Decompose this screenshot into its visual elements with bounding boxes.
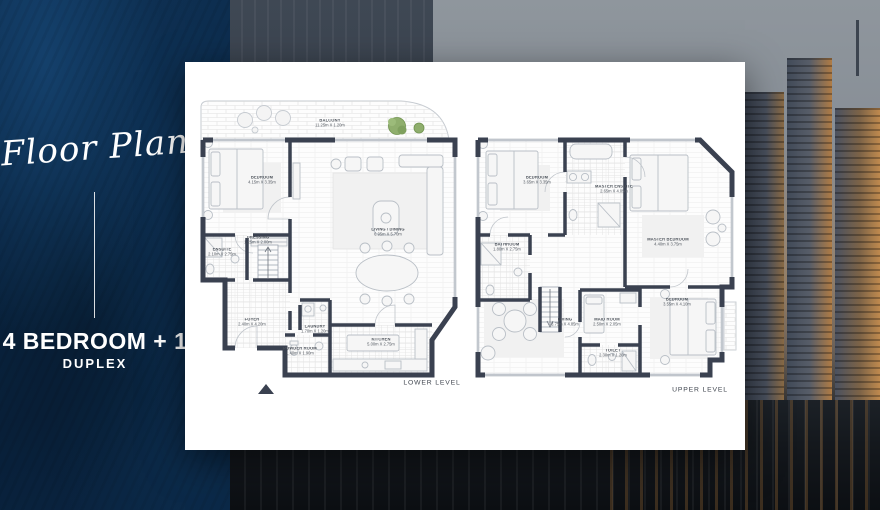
unit-type-headline: 4 BEDROOM + 1	[0, 328, 200, 355]
coffee-table-icon	[373, 201, 399, 235]
tower-2	[787, 58, 832, 404]
stairs-icon	[540, 287, 560, 332]
side-balcony	[724, 302, 736, 350]
floorplan-card: BALCONY11.25m X 1.20m BEDROOM4.15m X 3.3…	[185, 62, 745, 450]
console-icon	[293, 163, 300, 199]
script-title: Floor Plan	[0, 121, 191, 174]
tower-1	[744, 92, 784, 404]
lower-plan-drawing	[195, 97, 465, 397]
level-label-lower: LOWER LEVEL	[385, 379, 479, 387]
entrance-marker-icon	[258, 384, 274, 394]
unit-type-subheadline: DUPLEX	[0, 356, 200, 371]
stairs-icon	[258, 245, 278, 280]
balcony-area	[201, 101, 449, 140]
bed-icon	[479, 140, 539, 221]
lower-level-plan: BALCONY11.25m X 1.20m BEDROOM4.15m X 3.3…	[195, 97, 465, 397]
antenna-spire	[856, 20, 859, 76]
tower-3	[835, 108, 880, 404]
bed-icon	[204, 139, 264, 220]
upper-plan-drawing	[470, 97, 740, 397]
vertical-divider	[94, 192, 95, 318]
upper-level-plan: BEDROOM3.65m X 3.35m MASTER ENSUITE2.65m…	[470, 97, 740, 397]
slide: Floor Plan 4 BEDROOM + 1 DUPLEX	[0, 0, 880, 510]
dining-table-icon	[356, 241, 418, 306]
level-label-upper: UPPER LEVEL	[653, 386, 747, 394]
